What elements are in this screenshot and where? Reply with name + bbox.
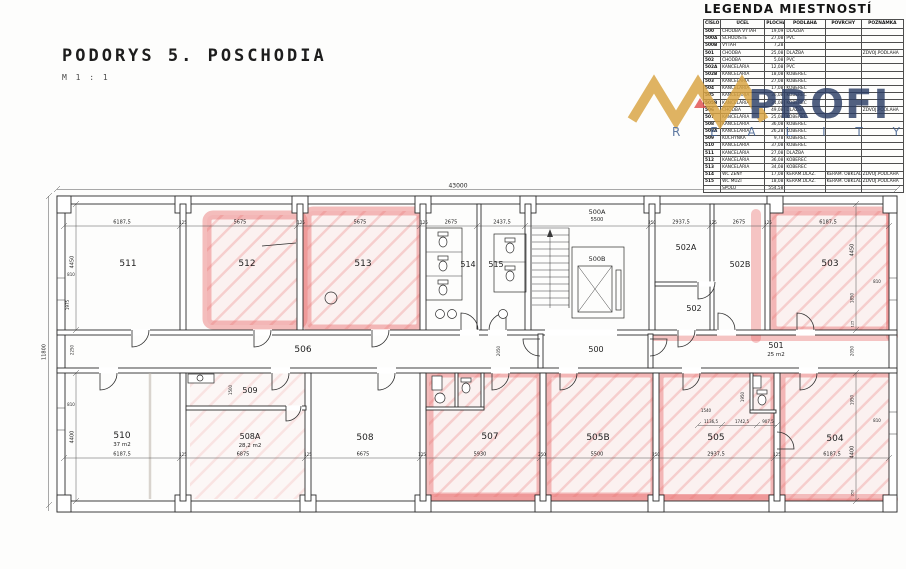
dim-515: 2437,5 [493,220,511,226]
dim-510: 6187,5 [113,452,131,458]
dim-wall: 125 [304,452,312,457]
room-label-500B: 500B [589,255,606,263]
stair-direction-arrow-icon [547,229,553,237]
dim-514: 2675 [445,220,458,226]
dim-mid-corridor: 2050 [496,345,501,356]
room-label-502: 502 [686,304,701,313]
room-label-504: 504 [826,434,843,444]
room-label-510: 510 [113,431,130,441]
highlight-513 [307,211,421,329]
room-label-508A: 508A [240,432,261,441]
dim-508: 6675 [357,452,370,458]
dim-505-sub1: 1136,5 [704,419,718,424]
room-label-511: 511 [119,259,136,269]
room-label-502B: 502B [730,260,751,269]
dim-511: 6187,5 [113,220,131,226]
dim-left-bottom: 4400 [70,431,76,444]
dim-right-door-top: 810 [873,279,881,284]
dim-505-nook-depth: 1950 [740,391,745,402]
dim-505: 2937,5 [707,452,725,458]
dim-wall: 125 [764,220,772,225]
room-label-514: 514 [460,260,475,269]
dim-right-125: 125 [851,321,855,328]
dim-505B: 5500 [591,452,604,458]
dim-513: 5675 [354,220,367,226]
room-label-505: 505 [707,433,724,443]
staircase [532,228,569,308]
dim-left-1975: 1975 [65,299,70,310]
room-label-506: 506 [294,345,311,355]
room-area-510: 37 m2 [113,442,131,448]
room-label-513: 513 [354,259,371,269]
room-area-501: 25 m2 [767,352,785,358]
room-label-508: 508 [356,433,373,443]
dim-right-350: 350 [851,490,855,497]
dim-overall-width: 43000 [448,183,467,190]
room-label-500A: 500A [589,208,606,216]
dim-right-door-bottom: 810 [873,418,881,423]
dim-overall-height: 11800 [42,344,48,360]
highlight-512 [207,215,303,325]
dim-right-top: 4450 [850,244,856,257]
dim-wall: 250 [648,220,656,225]
dim-left-door-top: 810 [67,272,75,277]
dim-505-sub3: 907,5 [762,419,774,424]
dim-500A: 5500 [591,217,604,223]
dim-wall: 125 [418,452,426,457]
dim-502A: 2937,5 [672,220,690,226]
dim-508A: 6875 [237,452,250,458]
dim-509-depth: 1500 [228,384,233,395]
dim-wall: 125 [773,452,781,457]
dim-left-door-bottom: 810 [67,402,75,407]
highlight-503 [772,211,891,331]
room-label-501: 501 [768,341,783,350]
dim-504: 6187,5 [823,452,841,458]
dim-right-corridor: 2050 [850,345,855,356]
dim-502B: 2675 [733,220,746,226]
dim-right-1950: 1950 [850,394,855,405]
dim-right-bottom: 4400 [850,446,856,459]
dim-505-sub2: 1742,5 [735,419,749,424]
room-label-515: 515 [488,260,503,269]
dim-512: 5675 [234,220,247,226]
room-label-507: 507 [481,432,498,442]
dim-left-corridor: 2250 [70,344,75,355]
floor-plan-drawing: 43000 11800 6187,5 125 5675 125 5675 125… [0,0,906,569]
room-label-505B: 505B [586,433,609,443]
dim-wall: 250 [538,452,546,457]
dim-507: 5930 [474,452,487,458]
room-area-508A: 28,2 m2 [239,443,262,449]
dim-right-1850: 1850 [850,292,855,303]
dim-left-top: 4450 [70,256,76,269]
room-label-509: 509 [242,386,257,395]
dim-505-nook: 1540 [701,408,712,413]
room-label-503: 503 [821,259,838,269]
dim-wall: 125 [420,220,428,225]
dim-wall: 125 [179,220,187,225]
dim-503: 6187,5 [819,220,837,226]
room-label-512: 512 [238,259,255,269]
dim-wall: 125 [179,452,187,457]
room-label-500: 500 [588,345,603,354]
room-label-502A: 502A [676,243,697,252]
scanned-floor-plan-page: { "title": { "main": "PODORYS 5. POSCHOD… [0,0,906,569]
dim-wall: 125 [297,220,305,225]
dim-wall: 250 [652,452,660,457]
dim-wall: 125 [709,220,717,225]
